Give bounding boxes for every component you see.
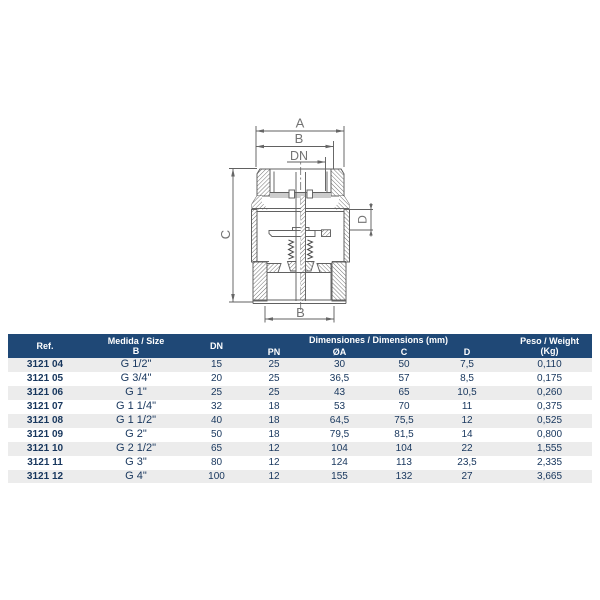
svg-text:DN: DN	[290, 149, 308, 163]
svg-text:A: A	[296, 116, 305, 131]
svg-text:C: C	[218, 230, 233, 239]
svg-text:D: D	[356, 215, 370, 224]
svg-text:B: B	[295, 131, 304, 146]
svg-text:B: B	[296, 305, 305, 320]
